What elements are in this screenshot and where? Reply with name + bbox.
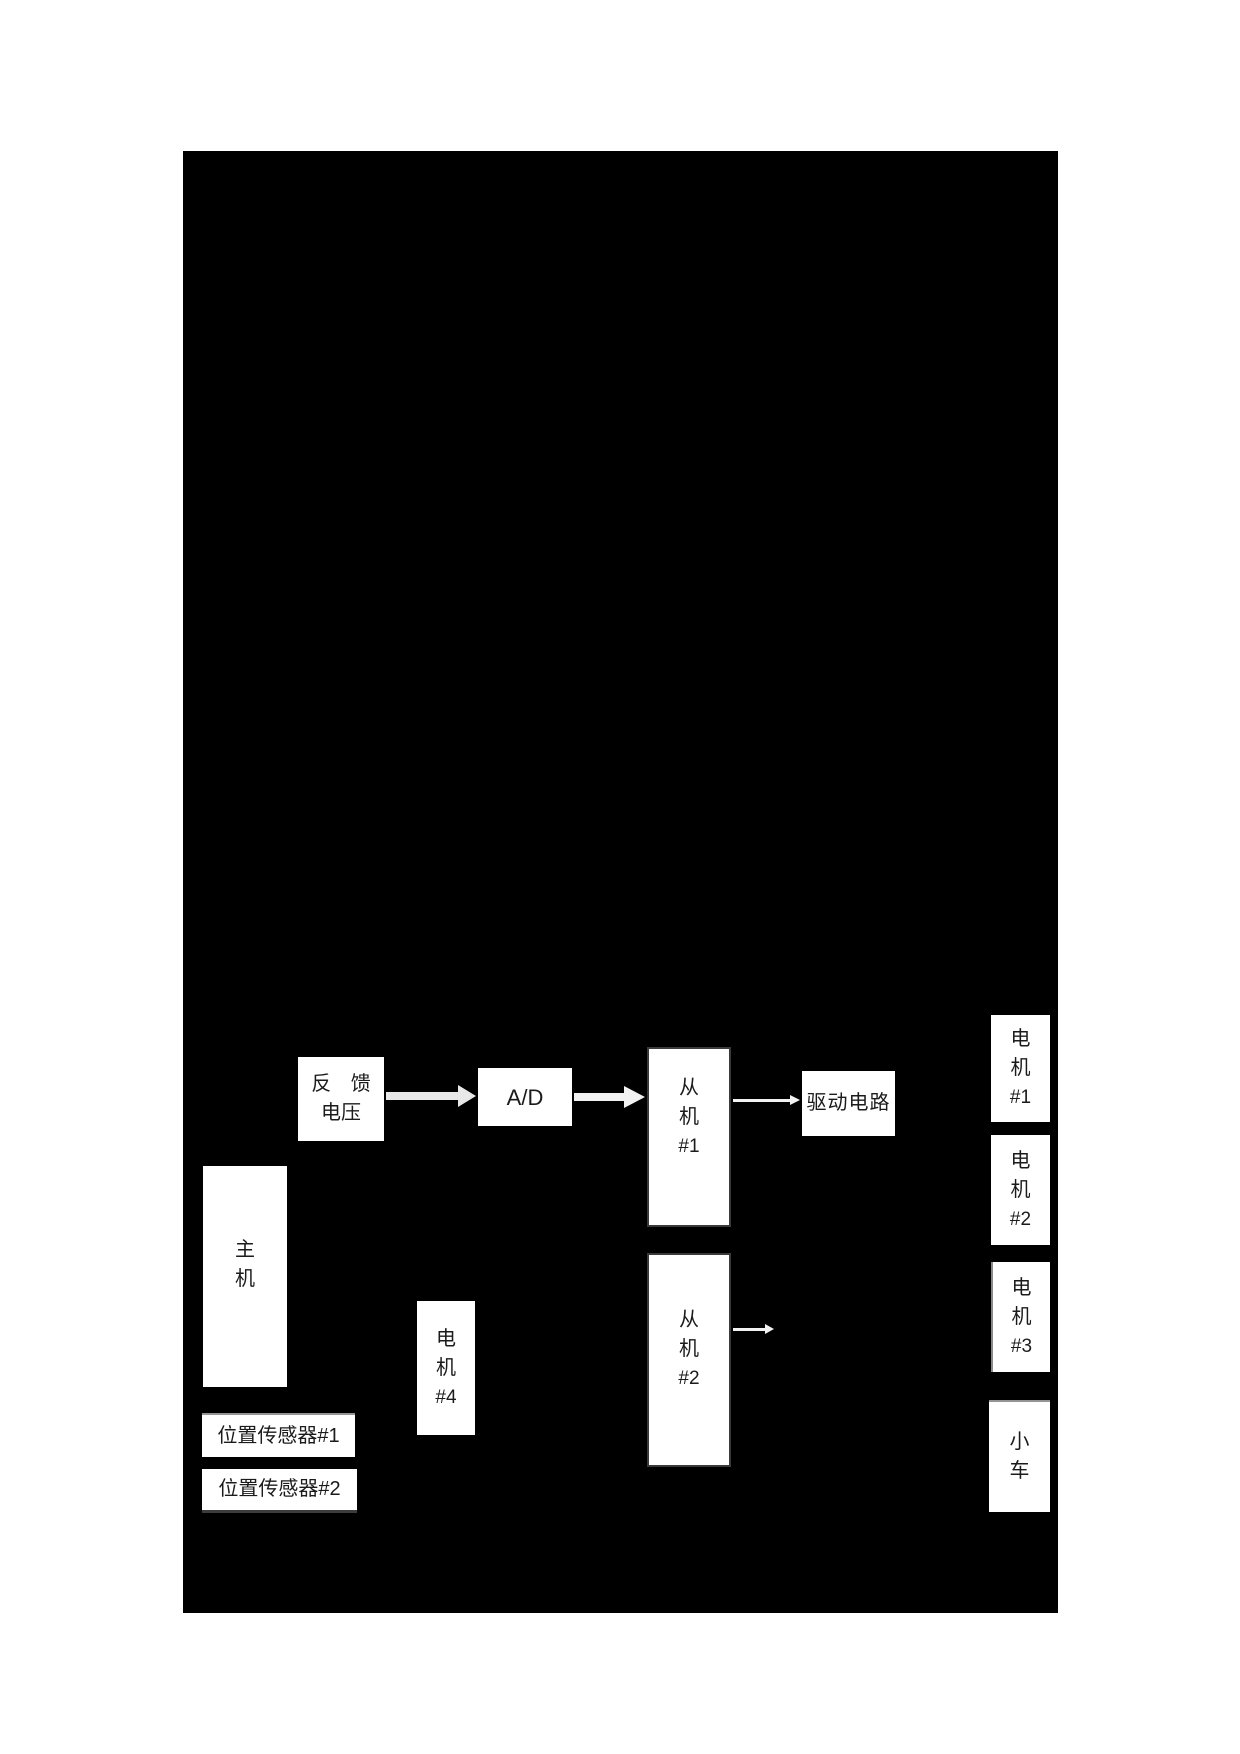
- node-slave-1-line2: 机: [679, 1103, 699, 1132]
- node-motor-4: 电 机 #4: [417, 1301, 475, 1435]
- node-ad-converter-label: A/D: [507, 1083, 544, 1112]
- node-feedback-voltage: 反 馈 电压: [298, 1057, 384, 1141]
- node-motor-3: 电 机 #3: [991, 1262, 1050, 1372]
- node-motor-4-line2: 机: [436, 1354, 456, 1383]
- node-cart: 小 车: [989, 1400, 1050, 1512]
- node-motor-2: 电 机 #2: [991, 1135, 1050, 1245]
- node-slave-2-line3: #2: [678, 1364, 699, 1393]
- arrow-feedback-to-ad: [386, 1084, 476, 1108]
- node-drive-circuit: 驱动电路: [802, 1071, 895, 1136]
- node-ad-converter: A/D: [478, 1068, 572, 1126]
- node-motor-1-line3: #1: [1010, 1083, 1031, 1112]
- arrow-ad-to-slave1-head: [624, 1086, 645, 1108]
- node-master: 主 机: [203, 1166, 287, 1387]
- arrow-ad-to-slave1: [574, 1085, 645, 1109]
- arrow-feedback-to-ad-head: [458, 1085, 476, 1107]
- node-motor-1: 电 机 #1: [991, 1015, 1050, 1122]
- node-motor-3-line1: 电: [1012, 1274, 1032, 1303]
- arrow-slave1-to-drive-line: [733, 1099, 790, 1102]
- node-master-line2: 机: [235, 1265, 255, 1294]
- node-drive-circuit-label: 驱动电路: [807, 1089, 891, 1118]
- node-motor-1-line2: 机: [1011, 1054, 1031, 1083]
- arrow-slave1-to-drive: [733, 1093, 800, 1107]
- node-feedback-voltage-line1: 反 馈: [311, 1070, 371, 1099]
- node-motor-3-line3: #3: [1011, 1332, 1032, 1361]
- arrow-slave2-right-line: [733, 1328, 765, 1331]
- node-master-line1: 主: [235, 1236, 255, 1265]
- node-motor-1-line1: 电: [1011, 1025, 1031, 1054]
- node-slave-2-line1: 从: [679, 1306, 699, 1335]
- node-position-sensor-2: 位置传感器#2: [202, 1469, 357, 1513]
- arrow-feedback-to-ad-stem: [386, 1092, 458, 1100]
- node-position-sensor-1: 位置传感器#1: [202, 1413, 355, 1457]
- node-slave-1-line1: 从: [679, 1074, 699, 1103]
- arrow-slave1-to-drive-head: [790, 1095, 800, 1105]
- node-slave-2: 从 机 #2: [647, 1253, 731, 1467]
- node-motor-2-line3: #2: [1010, 1205, 1031, 1234]
- arrow-slave2-right: [733, 1322, 774, 1336]
- node-slave-2-line2: 机: [679, 1335, 699, 1364]
- arrow-ad-to-slave1-stem: [574, 1093, 624, 1101]
- node-motor-3-line2: 机: [1012, 1303, 1032, 1332]
- document-page: 反 馈 电压 A/D 从 机 #1 驱动电路 电 机 #1 电 机 #2: [0, 0, 1240, 1754]
- node-motor-2-line1: 电: [1011, 1147, 1031, 1176]
- node-cart-line1: 小: [1010, 1428, 1030, 1457]
- node-feedback-voltage-line2: 电压: [321, 1099, 361, 1128]
- node-motor-4-line1: 电: [436, 1325, 456, 1354]
- node-cart-line2: 车: [1010, 1457, 1030, 1486]
- node-slave-1: 从 机 #1: [647, 1047, 731, 1227]
- arrow-slave2-right-head: [765, 1324, 774, 1334]
- node-motor-2-line2: 机: [1011, 1176, 1031, 1205]
- node-motor-4-line3: #4: [435, 1383, 456, 1412]
- node-slave-1-line3: #1: [678, 1132, 699, 1161]
- node-position-sensor-2-label: 位置传感器#2: [218, 1475, 340, 1504]
- diagram-canvas: 反 馈 电压 A/D 从 机 #1 驱动电路 电 机 #1 电 机 #2: [183, 151, 1058, 1613]
- node-position-sensor-1-label: 位置传感器#1: [217, 1422, 339, 1451]
